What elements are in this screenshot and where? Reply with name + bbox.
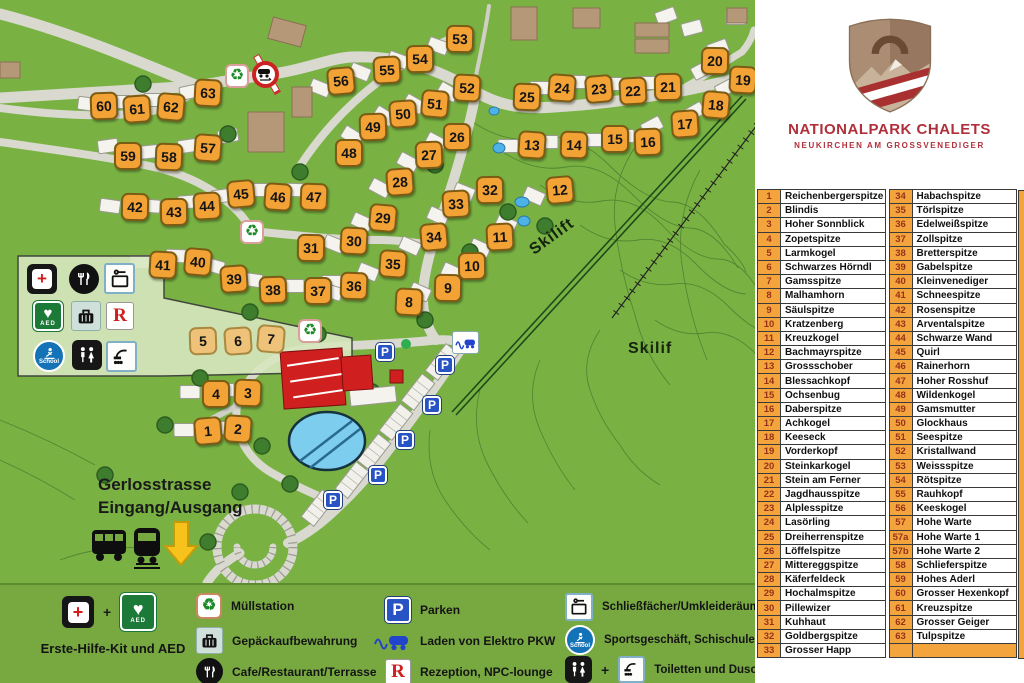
plot-marker-37: 37 [304,277,332,305]
plot-marker-52: 52 [452,73,481,102]
plot-name-cell: Rainerhorn [912,359,1018,374]
plot-marker-26: 26 [443,123,471,151]
legend-schliess: Schließfächer/Umkleideräume [565,593,755,621]
plot-number-cell: 53 [889,459,913,474]
plot-number-cell: 38 [889,246,913,261]
table-row: 11Kreuzkogel [757,331,886,346]
skilif-label: Skilif [628,340,672,358]
plot-name-cell: Hochalmspitze [780,586,886,601]
table-row: 17Achkogel [757,416,886,431]
table-row: 20Steinkarkogel [757,459,886,474]
plot-number-cell: 7 [757,274,781,289]
luggage-icon [196,627,223,654]
wc-icon [72,340,102,370]
plot-number-cell: 43 [889,317,913,332]
legend-cafe: Cafe/Restaurant/Terrasse [196,658,377,683]
plot-number-cell: 21 [757,473,781,488]
plot-number-cell: 22 [757,487,781,502]
plot-name-cell: Malhamhorn [780,288,886,303]
plot-number-cell: 41 [889,288,913,303]
table-row: 54Rötspitze [889,473,1018,488]
plot-number-cell [889,643,913,658]
chalet-table-left: 1Reichenbergerspitze2Blindis3Hoher Sonnb… [757,190,886,658]
plot-marker-10: 10 [458,252,486,280]
recycle-icon: ♻ [225,64,249,88]
table-row: 33Grosser Happ [757,643,886,658]
entrance-text: Eingang/Ausgang [98,497,243,520]
table-row: 8Malhamhorn [757,288,886,303]
plot-name-cell: Habachspitze [912,189,1018,204]
plot-name-cell: Gamsspitze [780,274,886,289]
table-row: 35Törlspitze [889,203,1018,218]
plot-number-cell: 35 [889,203,913,218]
plot-marker-55: 55 [372,55,401,84]
plot-name-cell: Hohe Warte 2 [912,544,1018,559]
plot-name-cell: Mittereggspitze [780,558,886,573]
plot-number-cell: 37 [889,232,913,247]
plot-marker-27: 27 [415,141,444,170]
table-row: 61Kreuzspitze [889,600,1018,615]
plot-number-cell: 15 [757,388,781,403]
plot-number-cell: 49 [889,402,913,417]
plot-marker-23: 23 [584,74,614,104]
plot-name-cell: Kristallwand [912,444,1018,459]
table-row: 31Kuhhaut [757,615,886,630]
plot-marker-21: 21 [654,73,682,101]
plot-marker-6: 6 [223,326,253,356]
table-row: 15Ochsenbug [757,388,886,403]
plot-name-cell: Bachmayrspitze [780,345,886,360]
plot-number-cell: 6 [757,260,781,275]
table-row: 13Grossschober [757,359,886,374]
brand-subtitle: NEUKIRCHEN AM GROSSVENEDIGER [755,141,1024,150]
plot-name-cell: Hohes Aderl [912,572,1018,587]
plot-name-cell: Goldbergspitze [780,629,886,644]
plot-number-cell: 3 [757,217,781,232]
plot-number-cell: 48 [889,388,913,403]
ev-charging-icon [373,629,411,653]
plot-name-cell: Käferfeldeck [780,572,886,587]
recycle-icon: ♻ [298,319,322,343]
table-row: 48Wildenkogel [889,388,1018,403]
plot-number-cell: 8 [757,288,781,303]
plot-name-cell: Grosser Geiger [912,615,1018,630]
plot-name-cell: Alplesspitze [780,501,886,516]
ev-charging-icon [452,331,479,354]
plot-number-cell: 11 [757,331,781,346]
table-row: 9Säulspitze [757,303,886,318]
plot-name-cell: Zollspitze [912,232,1018,247]
plot-marker-35: 35 [378,249,408,279]
aed-icon: ♥AED [120,593,156,631]
table-row: 1Reichenbergerspitze [757,189,886,204]
plot-number-cell: 62 [889,615,913,630]
table-row: 58Schlieferspitze [889,558,1018,573]
plot-number-cell: 63 [889,629,913,644]
plot-number-cell: 33 [757,643,781,658]
plot-marker-41: 41 [148,250,177,279]
plot-name-cell: Schlieferspitze [912,558,1018,573]
plot-name-cell: Hoher Sonnblick [780,217,886,232]
plot-marker-44: 44 [192,191,221,220]
table-row: 47Hoher Rosshuf [889,373,1018,388]
plot-marker-3: 3 [234,379,263,408]
table-row: 57bHohe Warte 2 [889,544,1018,559]
plot-name-cell: Rötspitze [912,473,1018,488]
locker-icon [565,593,593,621]
plot-name-cell: Wildenkogel [912,388,1018,403]
plot-name-cell: Rosenspitze [912,303,1018,318]
plot-marker-28: 28 [385,167,415,197]
table-row: 57aHohe Warte 1 [889,530,1018,545]
plot-number-cell: 57a [889,530,913,545]
plot-name-cell: Grosser Hexenkopf [912,586,1018,601]
plot-name-cell: Blessachkopf [780,373,886,388]
plot-number-cell: 25 [757,530,781,545]
plot-name-cell: Gamsmutter [912,402,1018,417]
site-map: 1234567891011121314151617181920212223242… [0,0,755,683]
plot-marker-43: 43 [160,198,188,226]
plot-marker-2: 2 [223,414,253,444]
plot-name-cell: Arventalspitze [912,317,1018,332]
parking-icon: P [324,491,342,509]
chalet-table-right: 34Habachspitze35Törlspitze36Edelweißspit… [889,190,1018,658]
luggage-icon [71,301,101,331]
parking-icon: P [376,343,394,361]
plot-name-cell: Blindis [780,203,886,218]
plot-marker-39: 39 [219,264,249,294]
table-row: 32Goldbergspitze [757,629,886,644]
locker-icon [104,263,135,294]
table-row: 19Vorderkopf [757,444,886,459]
plot-number-cell: 46 [889,359,913,374]
plot-number-cell: 9 [757,303,781,318]
plot-marker-5: 5 [189,327,218,356]
plot-number-cell: 57 [889,515,913,530]
table-row: 6Schwarzes Hörndl [757,260,886,275]
plot-marker-9: 9 [434,274,462,302]
legend-sport: School Sportsgeschäft, Schischule [565,625,755,655]
plot-marker-50: 50 [388,99,418,129]
plot-name-cell: Larmkogel [780,246,886,261]
table-row: 10Kratzenberg [757,317,886,332]
table-row: 41Schneespitze [889,288,1018,303]
plot-marker-12: 12 [545,175,575,205]
plot-marker-36: 36 [340,272,369,301]
plot-marker-13: 13 [517,130,547,160]
legend-label-first-aid: Erste-Hilfe-Kit und AED [18,641,208,656]
plot-number-cell: 23 [757,501,781,516]
legend-rezeption: R Rezeption, NPC-lounge [385,659,553,683]
transit-entrance-icons [92,520,207,578]
plot-number-cell: 5 [757,246,781,261]
train-icon [134,528,160,568]
plot-number-cell: 4 [757,232,781,247]
plot-number-cell: 51 [889,430,913,445]
plot-name-cell: Lasörling [780,515,886,530]
plot-marker-32: 32 [476,176,504,204]
plot-marker-45: 45 [226,179,256,209]
recycle-icon: ♻ [240,220,264,244]
table-row: 3Hoher Sonnblick [757,217,886,232]
plot-number-cell: 26 [757,544,781,559]
plot-name-cell: Ochsenbug [780,388,886,403]
restaurant-icon [196,658,223,683]
plot-name-cell: Hohe Warte 1 [912,530,1018,545]
table-row: 38Bretterspitze [889,246,1018,261]
table-row: 49Gamsmutter [889,402,1018,417]
shower-icon [618,656,645,683]
street-name: Gerlosstrasse [98,474,243,497]
plot-marker-29: 29 [368,203,398,233]
plot-number-cell: 19 [757,444,781,459]
plot-marker-46: 46 [263,182,293,212]
plot-marker-38: 38 [259,276,288,305]
table-row: 63Tulpspitze [889,629,1018,644]
plot-number-cell: 20 [757,459,781,474]
plot-name-cell: Rauhkopf [912,487,1018,502]
plot-number-cell: 1 [757,189,781,204]
plot-name-cell: Kuhhaut [780,615,886,630]
table-edge-strip [1018,190,1024,659]
table-row: 4Zopetspitze [757,232,886,247]
table-row: 29Hochalmspitze [757,586,886,601]
recycle-icon: ♻ [196,593,222,619]
plot-marker-42: 42 [121,193,149,221]
plot-name-cell: Stein am Ferner [780,473,886,488]
table-row: 46Rainerhorn [889,359,1018,374]
plot-name-cell: Schneespitze [912,288,1018,303]
plot-number-cell: 59 [889,572,913,587]
table-row: 44Schwarze Wand [889,331,1018,346]
plot-name-cell: Hohe Warte [912,515,1018,530]
table-row: 26Löffelspitze [757,544,886,559]
plot-number-cell: 60 [889,586,913,601]
plot-name-cell: Grossschober [780,359,886,374]
table-row: 60Grosser Hexenkopf [889,586,1018,601]
plot-name-cell: Bretterspitze [912,246,1018,261]
reception-icon: R [106,302,134,330]
table-row: 2Blindis [757,203,886,218]
plot-number-cell: 39 [889,260,913,275]
legend-elektro: Laden von Elektro PKW [373,629,555,653]
plot-number-cell: 31 [757,615,781,630]
plot-name-cell: Vorderkopf [780,444,886,459]
table-row: 55Rauhkopf [889,487,1018,502]
plot-number-cell: 47 [889,373,913,388]
plot-number-cell: 50 [889,416,913,431]
plot-number-cell: 55 [889,487,913,502]
plot-number-cell: 12 [757,345,781,360]
parking-icon: P [369,466,387,484]
table-row: 21Stein am Ferner [757,473,886,488]
plot-number-cell: 30 [757,600,781,615]
table-row: 22Jagdhausspitze [757,487,886,502]
plot-marker-59: 59 [114,142,142,170]
plot-number-cell: 14 [757,373,781,388]
plot-number-cell: 54 [889,473,913,488]
reception-icon: R [385,659,411,683]
plot-number-cell: 44 [889,331,913,346]
plot-number-cell: 40 [889,274,913,289]
parking-icon: P [385,597,411,623]
plot-number-cell: 58 [889,558,913,573]
plot-number-cell: 18 [757,430,781,445]
plot-marker-56: 56 [326,66,356,96]
map-legend: + + ♥AED Erste-Hilfe-Kit und AED ♻ Mülls… [0,583,755,683]
plot-number-cell: 16 [757,402,781,417]
plot-marker-14: 14 [560,131,589,160]
brand-title: NATIONALPARK CHALETS [755,121,1024,138]
plot-number-cell: 52 [889,444,913,459]
plot-marker-58: 58 [155,143,184,172]
plot-marker-51: 51 [420,89,450,119]
plot-number-cell: 27 [757,558,781,573]
plot-marker-40: 40 [183,247,213,277]
plot-marker-61: 61 [122,94,152,124]
table-row: 42Rosenspitze [889,303,1018,318]
legend-toiletten: + Toiletten und Duschen [565,656,755,683]
brand-logo [844,13,936,115]
plot-name-cell: Kreuzspitze [912,600,1018,615]
parking-icon: P [423,396,441,414]
plot-name-cell: Schwarze Wand [912,331,1018,346]
plot-name-cell: Reichenbergerspitze [780,189,886,204]
plot-marker-53: 53 [446,25,474,53]
plot-name-cell: Zopetspitze [780,232,886,247]
plot-marker-63: 63 [193,78,222,107]
table-row: 45Quirl [889,345,1018,360]
table-row: 52Kristallwand [889,444,1018,459]
first-aid-icon: + [27,264,57,294]
wc-icon [565,656,592,683]
plot-number-cell: 17 [757,416,781,431]
table-row: 36Edelweißspitze [889,217,1018,232]
entrance-label: Gerlosstrasse Eingang/Ausgang [98,474,243,520]
table-row: 34Habachspitze [889,189,1018,204]
table-row: 56Keeskogel [889,501,1018,516]
plot-number-cell: 2 [757,203,781,218]
plot-marker-62: 62 [156,92,186,122]
plot-name-cell: Hoher Rosshuf [912,373,1018,388]
table-row: 16Daberspitze [757,402,886,417]
plot-name-cell: Glockhaus [912,416,1018,431]
plot-name-cell: Pillewizer [780,600,886,615]
table-row: 30Pillewizer [757,600,886,615]
table-row: 27Mittereggspitze [757,558,886,573]
info-panel: NATIONALPARK CHALETS NEUKIRCHEN AM GROSS… [755,0,1024,683]
plot-number-cell: 45 [889,345,913,360]
plot-marker-54: 54 [406,45,434,73]
plot-name-cell: Gabelspitze [912,260,1018,275]
plot-name-cell: Keeseck [780,430,886,445]
parking-icon: P [436,356,454,374]
table-row: 57Hohe Warte [889,515,1018,530]
no-vehicles-sign-icon [251,60,281,90]
table-row: 51Seespitze [889,430,1018,445]
plot-number-cell: 56 [889,501,913,516]
restaurant-icon [69,264,99,294]
resort-map-page: 1234567891011121314151617181920212223242… [0,0,1024,683]
table-row: 25Dreiherrenspitze [757,530,886,545]
plot-marker-57: 57 [193,133,223,163]
plot-marker-25: 25 [513,83,542,112]
plot-name-cell: Quirl [912,345,1018,360]
plot-name-cell: Schwarzes Hörndl [780,260,886,275]
plot-number-cell: 24 [757,515,781,530]
plot-marker-31: 31 [297,234,325,262]
plot-number-cell: 61 [889,600,913,615]
plot-number-cell: 57b [889,544,913,559]
plot-marker-33: 33 [441,189,470,218]
ski-school-icon: School [33,340,65,372]
bus-icon [92,530,126,561]
plot-marker-20: 20 [701,47,729,75]
plot-name-cell: Dreiherrenspitze [780,530,886,545]
table-row: 23Alplesspitze [757,501,886,516]
plot-number-cell: 28 [757,572,781,587]
table-row: 59Hohes Aderl [889,572,1018,587]
plot-marker-22: 22 [618,76,647,105]
table-row: 18Keeseck [757,430,886,445]
entrance-arrow-icon [165,522,197,565]
table-row: 53Weissspitze [889,459,1018,474]
table-row: 7Gamsspitze [757,274,886,289]
plot-marker-34: 34 [419,222,449,252]
table-row: 12Bachmayrspitze [757,345,886,360]
chalet-name-table: 1Reichenbergerspitze2Blindis3Hoher Sonnb… [757,190,1017,658]
plot-marker-17: 17 [670,109,700,139]
ski-school-icon: School [565,625,595,655]
plot-marker-48: 48 [335,139,363,167]
table-row: 14Blessachkopf [757,373,886,388]
table-row: 40Kleinvenediger [889,274,1018,289]
aed-icon: ♥AED [33,301,63,331]
plot-name-cell: Achkogel [780,416,886,431]
plot-name-cell: Seespitze [912,430,1018,445]
plot-marker-47: 47 [300,183,329,212]
table-row: 28Käferfeldeck [757,572,886,587]
plot-number-cell: 36 [889,217,913,232]
plot-name-cell: Löffelspitze [780,544,886,559]
table-row: 5Larmkogel [757,246,886,261]
table-row [889,643,1018,658]
table-row: 62Grosser Geiger [889,615,1018,630]
table-row: 39Gabelspitze [889,260,1018,275]
plot-marker-18: 18 [701,90,731,120]
plot-name-cell: Säulspitze [780,303,886,318]
plot-name-cell: Tulpspitze [912,629,1018,644]
plot-name-cell [912,643,1018,658]
legend-first-aid-icons: + + ♥AED [62,593,156,631]
legend-gepaeck: Gepäckaufbewahrung [196,627,357,654]
table-row: 37Zollspitze [889,232,1018,247]
plot-name-cell: Steinkarkogel [780,459,886,474]
plot-name-cell: Keeskogel [912,501,1018,516]
plot-number-cell: 32 [757,629,781,644]
plot-marker-24: 24 [547,73,577,103]
plot-name-cell: Grosser Happ [780,643,886,658]
plot-name-cell: Weissspitze [912,459,1018,474]
plot-marker-60: 60 [90,92,119,121]
parking-icon: P [396,431,414,449]
plot-marker-16: 16 [634,128,663,157]
legend-parken: P Parken [385,597,460,623]
plot-number-cell: 42 [889,303,913,318]
plot-marker-11: 11 [485,222,514,251]
table-row: 43Arventalspitze [889,317,1018,332]
plot-name-cell: Kratzenberg [780,317,886,332]
